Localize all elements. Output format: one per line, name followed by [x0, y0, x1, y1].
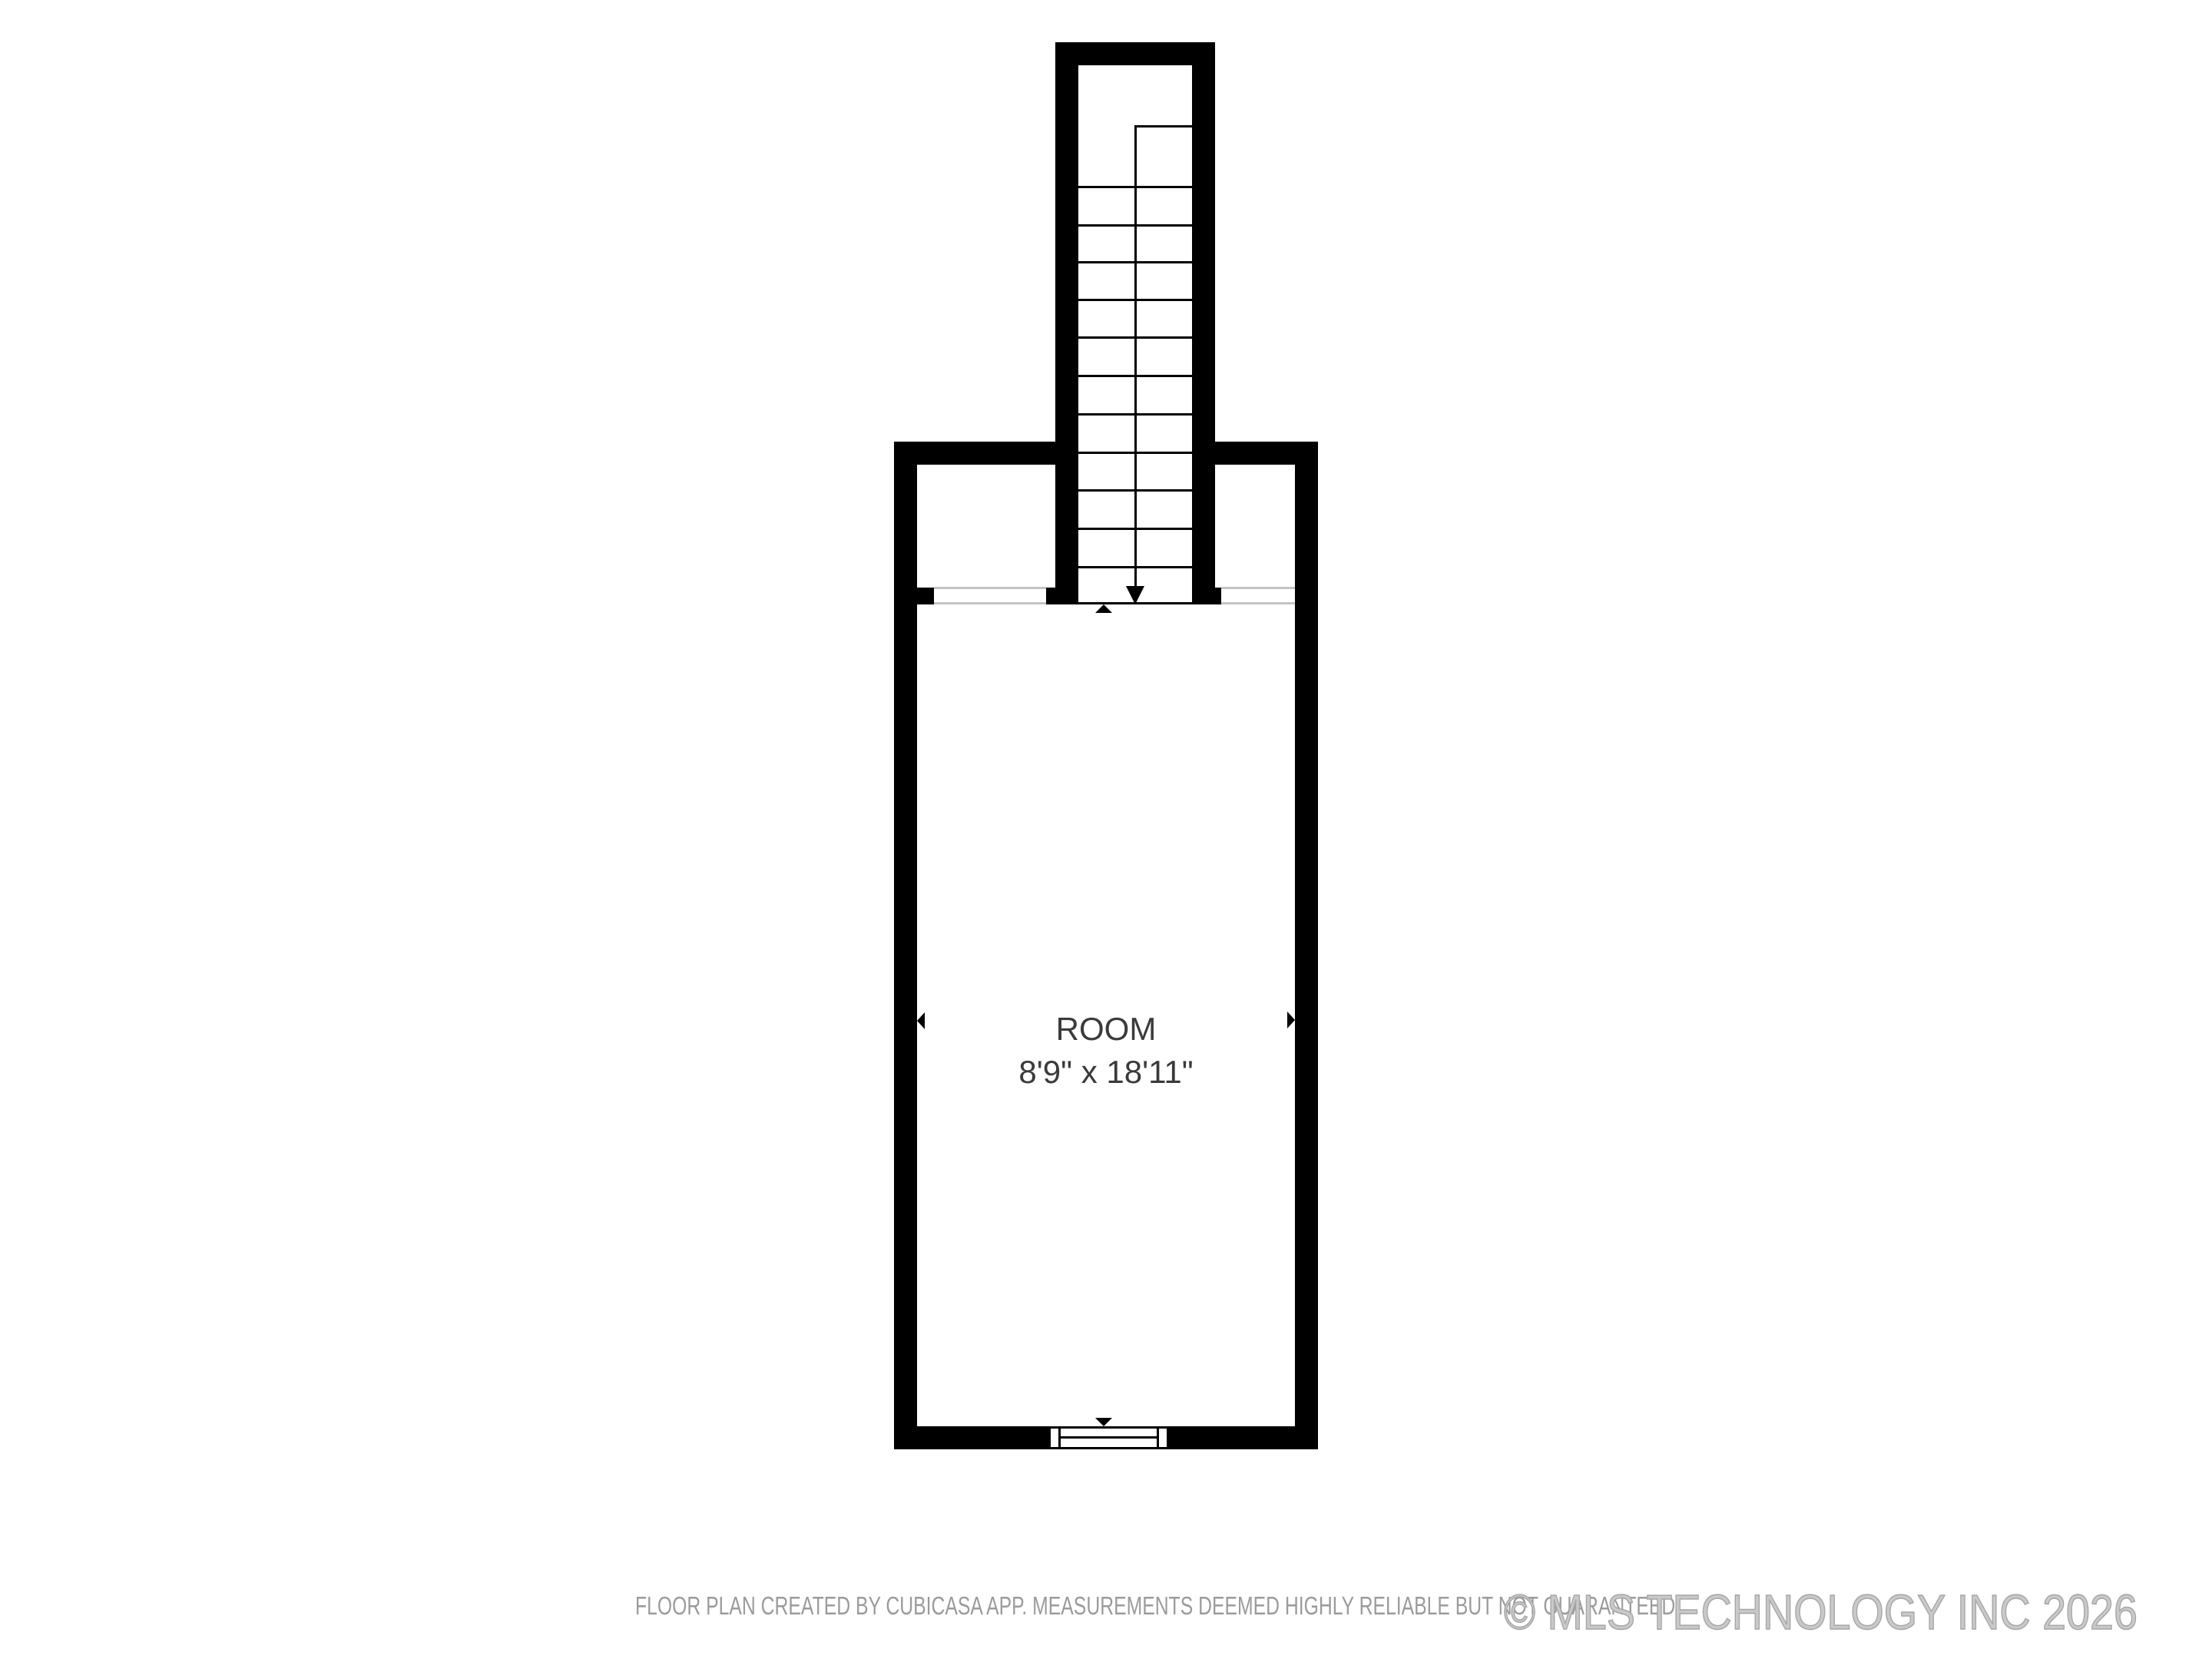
opening-line-right-top	[1221, 587, 1295, 589]
opening-line-left-bottom	[934, 602, 1046, 604]
watermark-text: © MLS TECHNOLOGY INC 2026	[1504, 1584, 2137, 1641]
wall-top-left-segment	[894, 442, 1055, 465]
window-glass-line	[1058, 1436, 1159, 1439]
stair-center-line	[1134, 125, 1137, 588]
wall-stub-left-opening-left	[917, 588, 934, 604]
stair-shaft-wall-left	[1055, 42, 1078, 604]
stair-direction-arrow	[1126, 586, 1144, 604]
wall-stub-right-opening-left	[1215, 588, 1221, 604]
stair-landing-line	[1135, 125, 1192, 127]
opening-line-left-top	[934, 587, 1046, 589]
window-symbol	[1048, 1426, 1169, 1449]
measure-arrow-down-icon	[1095, 1418, 1112, 1426]
stair-shaft-wall-top	[1055, 42, 1215, 65]
floor-plan-canvas: ROOM 8'9" x 18'11" FLOOR PLAN CREATED BY…	[0, 0, 2212, 1659]
opening-line-right-bottom	[1221, 602, 1295, 604]
stair-shaft-wall-right	[1192, 42, 1215, 604]
room-dimensions: 8'9" x 18'11"	[894, 1051, 1318, 1094]
room-name: ROOM	[894, 1008, 1318, 1051]
room-label-block: ROOM 8'9" x 18'11"	[894, 1008, 1318, 1094]
wall-left	[894, 442, 917, 1449]
wall-stub-left-opening-right	[1046, 588, 1055, 604]
measure-arrow-up-icon	[1095, 604, 1112, 613]
wall-right	[1295, 442, 1318, 1449]
